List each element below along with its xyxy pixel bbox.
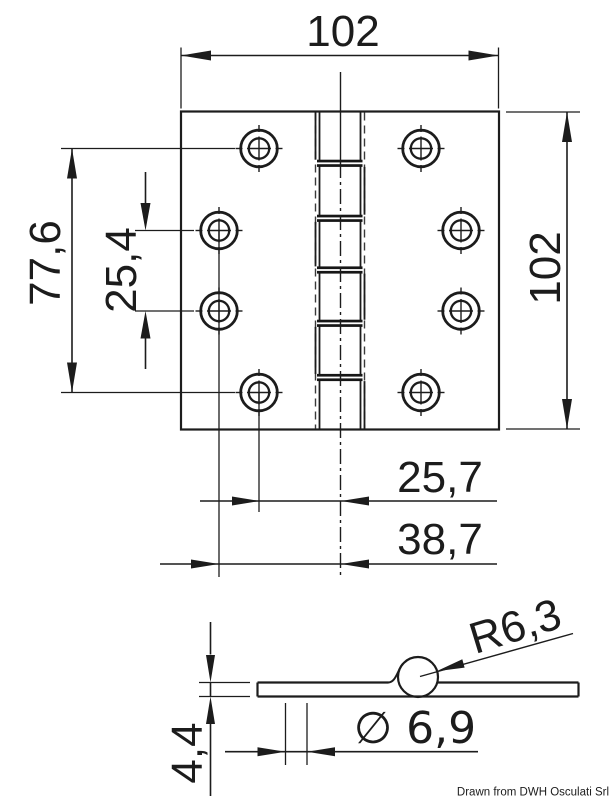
screw-hole — [236, 125, 283, 172]
arrowhead — [67, 363, 77, 393]
arrowhead — [67, 149, 77, 179]
dim-label-hole-row-pitch: 25,4 — [97, 227, 146, 313]
dim-label-leaf-thickness: 4,4 — [163, 722, 212, 783]
arrowhead — [232, 497, 260, 506]
screw-hole — [398, 125, 445, 172]
arrowhead — [141, 203, 151, 231]
knuckle-separators — [317, 160, 364, 381]
knuckle-circle — [398, 657, 438, 697]
dim-label-overall-width: 102 — [306, 7, 379, 56]
arrowhead — [141, 311, 151, 339]
arrowhead — [562, 399, 572, 429]
arrowhead — [258, 747, 286, 756]
arrowhead — [191, 560, 219, 569]
dim-label-hole-col-inner: 25,7 — [397, 453, 483, 502]
dim-label-pin-diameter: ∅ 6,9 — [354, 703, 476, 754]
arrowhead — [307, 747, 335, 756]
arrowhead — [437, 659, 465, 671]
arrowhead — [206, 697, 215, 725]
hinge-technical-drawing: 102 102 77,6 25,4 25,7 38,7 — [0, 0, 610, 800]
arrowhead — [341, 560, 369, 569]
screw-hole — [438, 288, 485, 335]
arrowhead — [341, 497, 369, 506]
dim-label-hole-row-span: 77,6 — [21, 220, 70, 306]
screw-hole — [438, 207, 485, 254]
dim-label-knuckle-radius: R6,3 — [464, 590, 567, 664]
arrowhead — [562, 112, 572, 142]
dim-hole-row-span — [61, 149, 235, 393]
dim-label-overall-height: 102 — [521, 231, 570, 304]
screw-hole — [398, 369, 445, 416]
arrowhead — [206, 655, 215, 683]
credit-text: Drawn from DWH Osculati Srl — [457, 787, 609, 799]
arrowhead — [181, 51, 211, 61]
drawing-sheet: 102 102 77,6 25,4 25,7 38,7 — [0, 0, 610, 800]
dim-label-hole-col-outer: 38,7 — [397, 515, 483, 564]
dim-overall-width — [181, 48, 499, 109]
arrowhead — [469, 51, 499, 61]
